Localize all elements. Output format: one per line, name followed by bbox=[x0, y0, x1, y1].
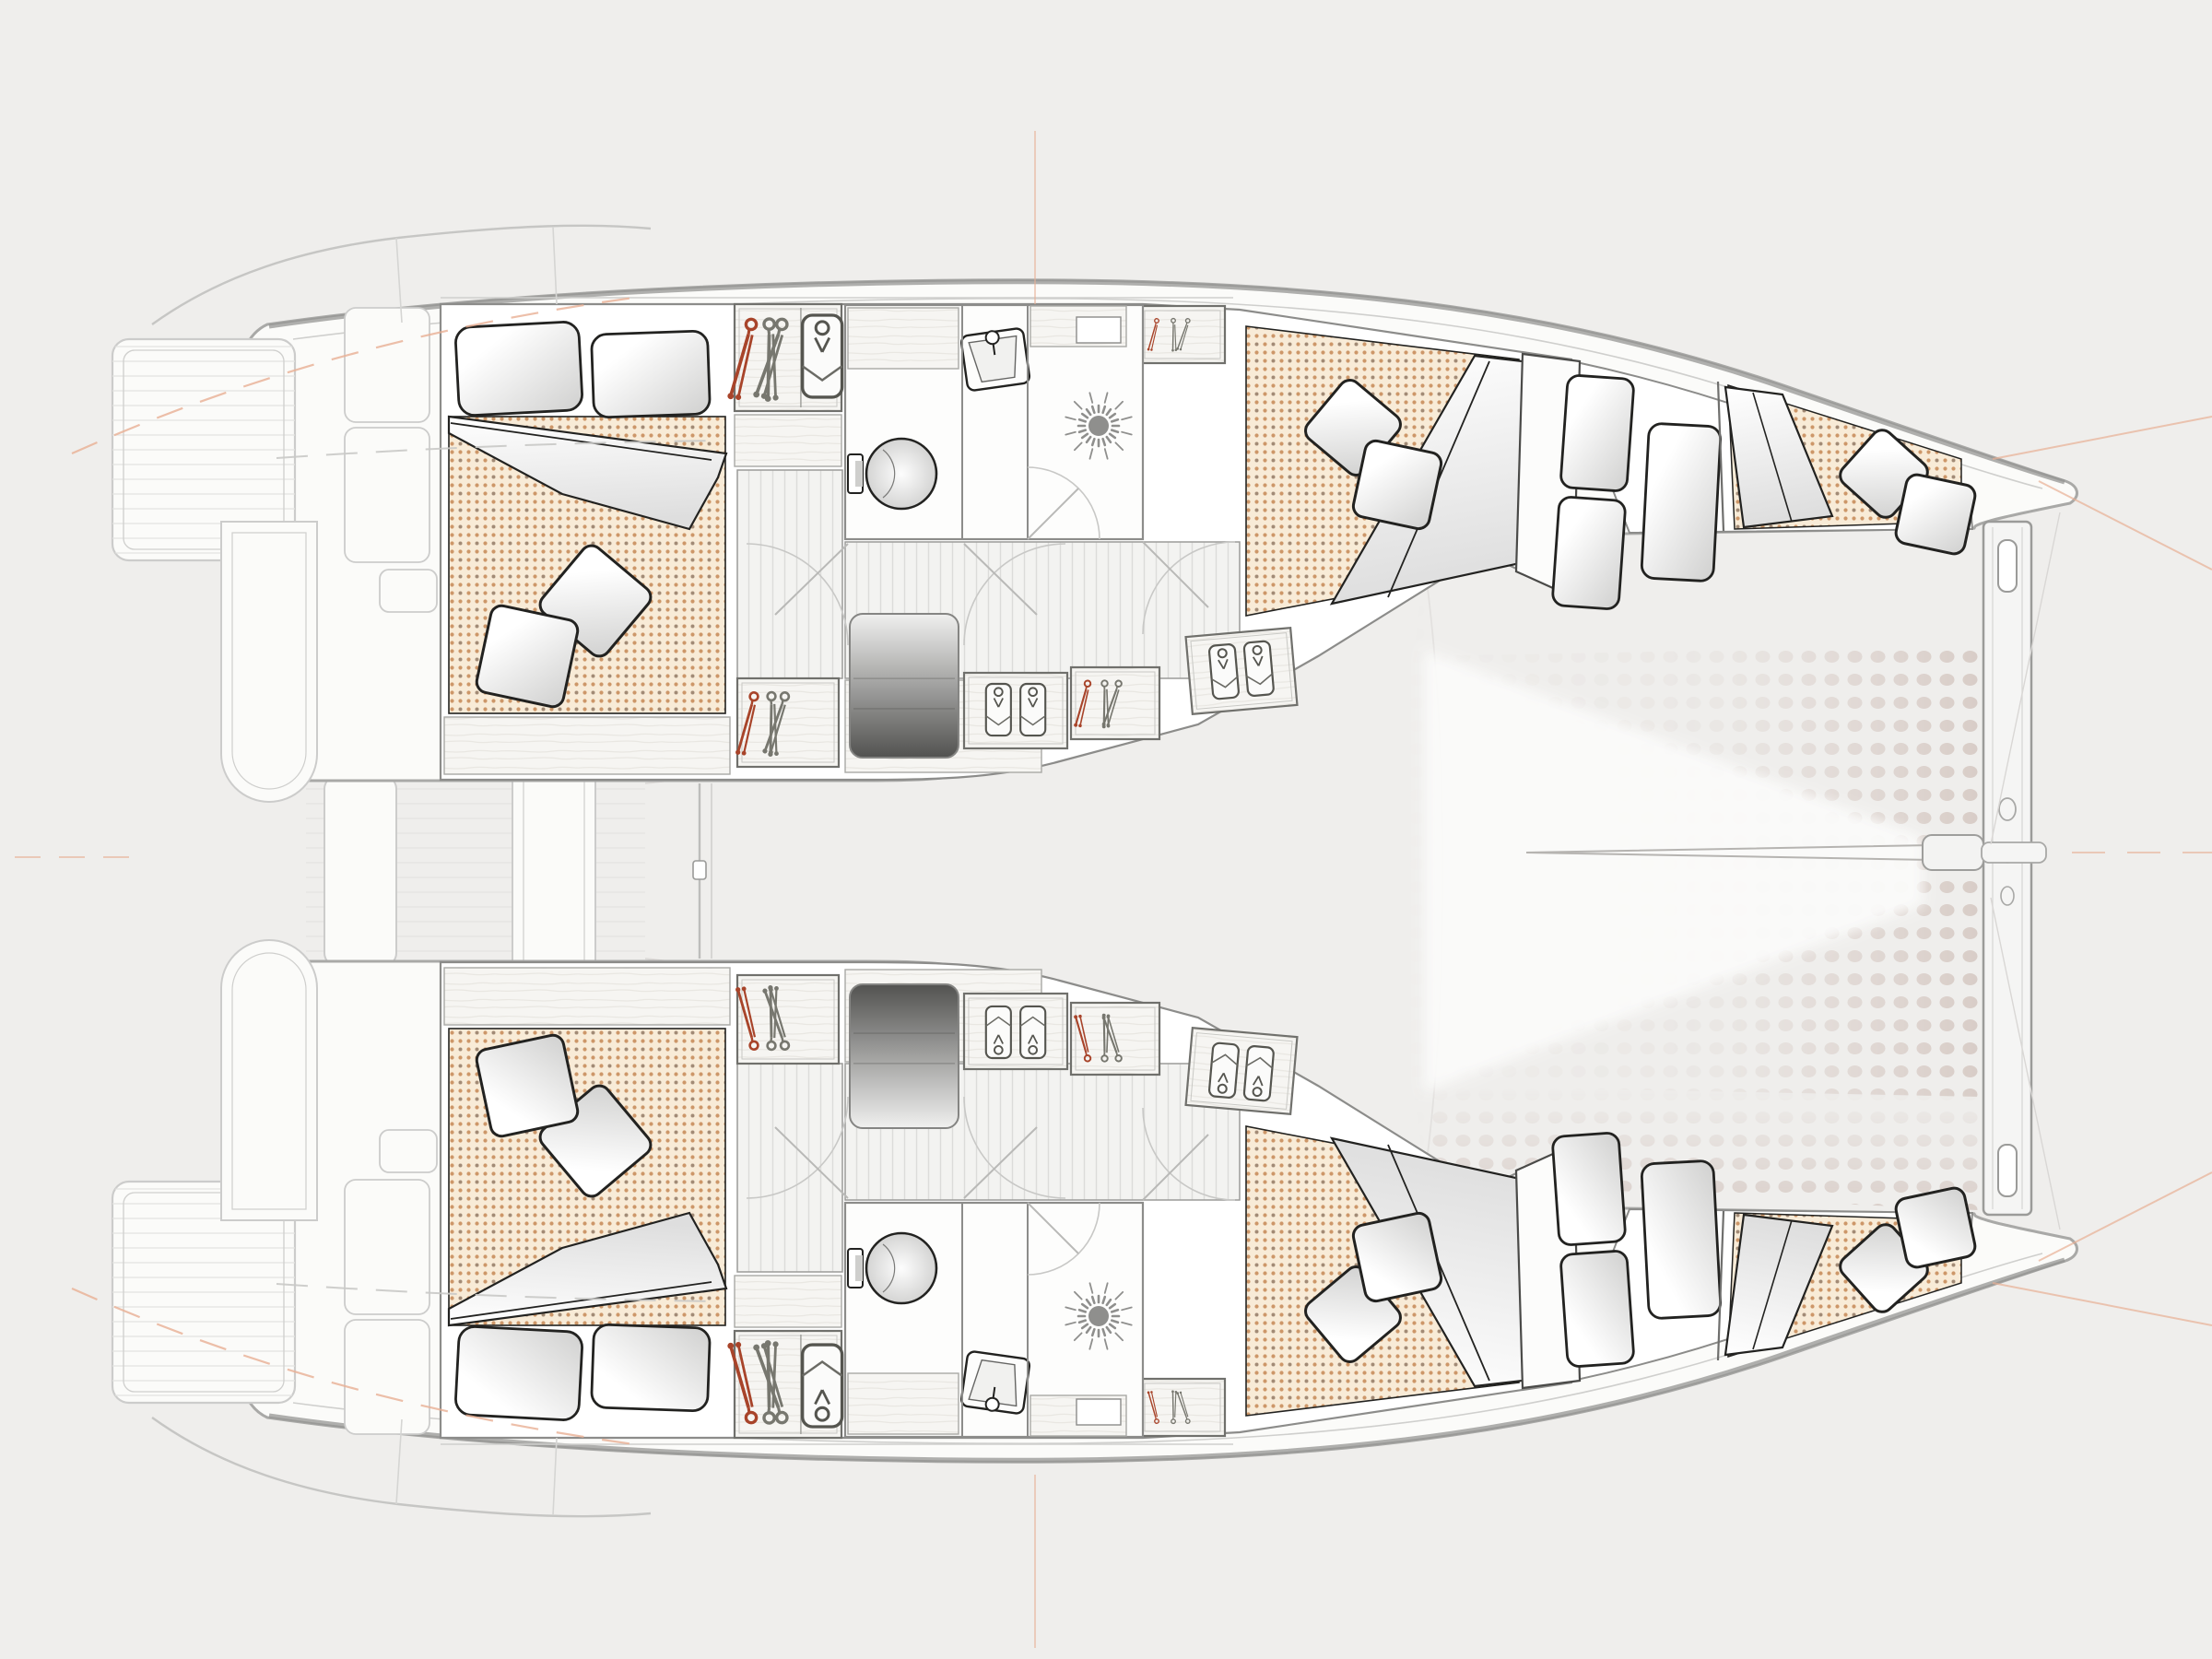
crossbeam bbox=[1983, 522, 2031, 1215]
vanity-cabinet bbox=[848, 308, 959, 369]
shower-shelf-inner bbox=[1077, 317, 1121, 343]
cockpit-bench-aft bbox=[345, 1320, 429, 1434]
washbasin bbox=[960, 1351, 1030, 1416]
companionway-stairs bbox=[850, 614, 959, 758]
garment-body bbox=[986, 684, 1011, 735]
folded-garment-icon bbox=[803, 315, 842, 397]
hanger-neck bbox=[771, 700, 771, 704]
catamaran-floorplan bbox=[0, 0, 2212, 1659]
hanger-neck bbox=[782, 1038, 783, 1041]
wardrobe-box bbox=[1186, 1028, 1298, 1114]
folded-garment-icon bbox=[1243, 1046, 1274, 1101]
hanger-neck bbox=[752, 1038, 753, 1041]
wardrobe-hanging bbox=[1071, 1003, 1159, 1075]
wardrobe-hanging bbox=[1071, 667, 1159, 739]
wardrobe-hanging bbox=[735, 975, 839, 1064]
stairs-body bbox=[850, 984, 959, 1128]
wardrobe-shelf bbox=[1186, 628, 1298, 714]
berth-pillow bbox=[1641, 423, 1722, 582]
throw-pillow bbox=[1351, 439, 1443, 531]
garment-body bbox=[803, 1345, 842, 1427]
cabin-floor bbox=[444, 968, 730, 1025]
hanger-neck bbox=[748, 1407, 749, 1413]
garment-body bbox=[1243, 1046, 1274, 1101]
garment-body bbox=[803, 315, 842, 397]
wardrobe-hanging bbox=[727, 304, 842, 411]
folded-garment-icon bbox=[1243, 641, 1274, 696]
garment-body bbox=[986, 1006, 1011, 1058]
folded-garment-icon bbox=[1209, 644, 1240, 700]
cabin-floor bbox=[444, 717, 730, 774]
berth-pillow bbox=[1641, 1160, 1722, 1319]
companionway-stairs bbox=[850, 984, 959, 1128]
bowsprit-fitting bbox=[1923, 835, 1983, 870]
throw-pillow bbox=[1351, 1211, 1443, 1303]
hanger-neck bbox=[782, 700, 783, 704]
garment-body bbox=[1209, 1042, 1240, 1098]
hanger-neck bbox=[779, 329, 780, 335]
stairs-body bbox=[850, 614, 959, 758]
folded-garment-icon bbox=[1020, 1006, 1045, 1058]
berth-pillow bbox=[1560, 375, 1634, 492]
wardrobe-hanging bbox=[1140, 306, 1225, 363]
floorplan-canvas bbox=[0, 0, 2212, 1659]
crossbeam-slot bbox=[1998, 1145, 2017, 1196]
bowsprit-fitting-tip bbox=[1982, 842, 2046, 863]
hanger-neck bbox=[1116, 1053, 1117, 1055]
folded-garment-icon bbox=[986, 684, 1011, 735]
garment-body bbox=[1209, 644, 1240, 700]
hanger-neck bbox=[748, 329, 749, 335]
saloon-door-handle bbox=[693, 861, 706, 879]
garment-body bbox=[1020, 684, 1045, 735]
washbasin bbox=[960, 327, 1030, 392]
helm-seat bbox=[380, 570, 437, 612]
bed-pillow bbox=[455, 1326, 583, 1421]
wardrobe-box bbox=[1186, 628, 1298, 714]
wardrobe-hanging bbox=[1140, 1379, 1225, 1436]
wardrobe-shelf bbox=[1186, 1028, 1298, 1114]
transom-pod bbox=[221, 940, 317, 1220]
cabinet bbox=[735, 415, 841, 466]
folded-garment-icon bbox=[1209, 1042, 1240, 1098]
vanity-cabinet bbox=[848, 1373, 959, 1434]
cockpit-table bbox=[324, 776, 396, 966]
garment-body bbox=[1243, 641, 1274, 696]
toilet-hinge bbox=[855, 461, 863, 487]
throw-pillow bbox=[475, 1033, 580, 1138]
shower-shelf-inner bbox=[1077, 1399, 1121, 1425]
berth-pillow bbox=[1560, 1251, 1634, 1368]
wardrobe-shelf bbox=[964, 994, 1067, 1069]
toilet-hinge bbox=[855, 1255, 863, 1281]
hanger-neck bbox=[752, 700, 753, 704]
corridor-floor bbox=[737, 470, 842, 678]
wardrobe-hanging bbox=[727, 1331, 842, 1438]
hanger-neck bbox=[1116, 687, 1117, 689]
hanger-neck bbox=[771, 1038, 771, 1041]
faucet bbox=[985, 1397, 1000, 1412]
cockpit-bench-mid bbox=[345, 428, 429, 562]
crossbeam-slot bbox=[1998, 540, 2017, 592]
hanger-neck bbox=[769, 1407, 770, 1413]
hanger-neck bbox=[769, 329, 770, 335]
wardrobe-shelf bbox=[964, 673, 1067, 748]
bed-pillow bbox=[455, 322, 583, 417]
wardrobe-box bbox=[964, 994, 1067, 1069]
shower-head-center bbox=[1088, 1306, 1109, 1326]
wardrobe-hanging bbox=[735, 678, 839, 767]
garment-body bbox=[1020, 1006, 1045, 1058]
folded-garment-icon bbox=[986, 1006, 1011, 1058]
berth-pillow bbox=[1552, 497, 1626, 610]
throw-pillow bbox=[475, 604, 580, 709]
toilet-bowl bbox=[866, 439, 936, 509]
shower-head-center bbox=[1088, 416, 1109, 436]
folded-garment-icon bbox=[1020, 684, 1045, 735]
toilet-bowl bbox=[866, 1233, 936, 1303]
cockpit-bench-aft bbox=[345, 308, 429, 422]
cockpit-bench-mid bbox=[345, 1180, 429, 1314]
throw-pillow bbox=[1894, 1186, 1977, 1269]
throw-pillow bbox=[1894, 473, 1977, 556]
faucet bbox=[985, 330, 1000, 345]
hanger-neck bbox=[779, 1407, 780, 1413]
corridor-floor bbox=[737, 1064, 842, 1272]
folded-garment-icon bbox=[803, 1345, 842, 1427]
bed-pillow bbox=[591, 331, 710, 418]
wardrobe-box bbox=[964, 673, 1067, 748]
transom-pod bbox=[221, 522, 317, 802]
helm-seat bbox=[380, 1130, 437, 1172]
bed-pillow bbox=[591, 1324, 710, 1411]
cabinet bbox=[735, 1276, 841, 1327]
berth-pillow bbox=[1552, 1133, 1626, 1246]
